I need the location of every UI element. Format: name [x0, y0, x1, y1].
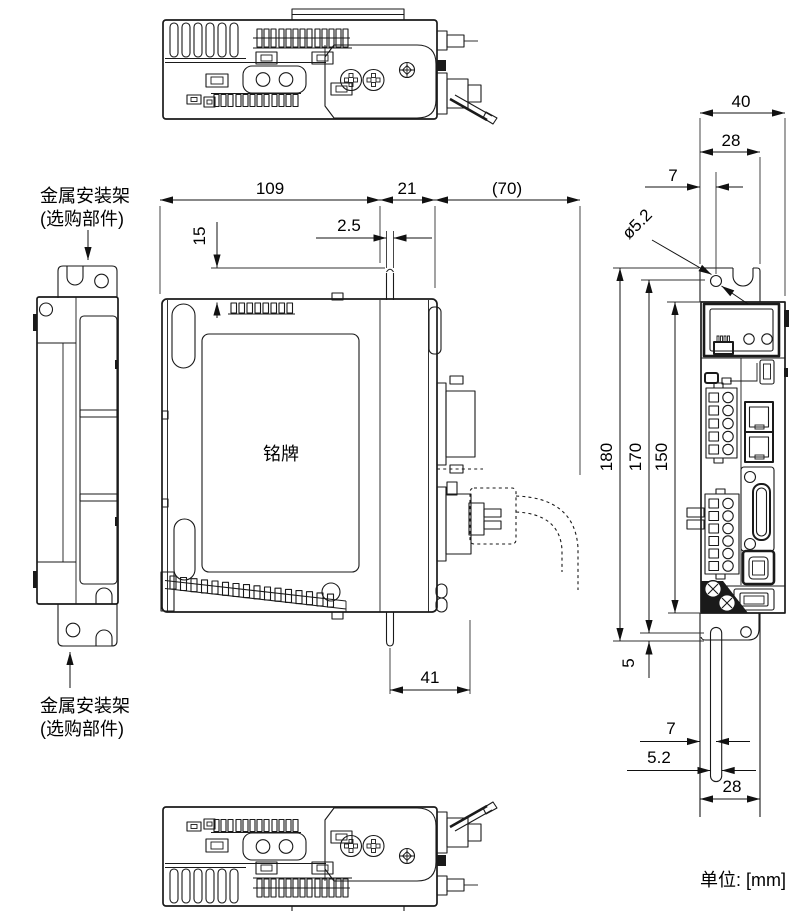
- heatsink-fins-icon: [165, 23, 246, 59]
- phillips-screw-icon: [719, 595, 736, 612]
- nameplate-label: 铭牌: [263, 444, 299, 464]
- network-jack: [745, 432, 773, 462]
- mounting-hole: [40, 303, 53, 316]
- indicator-hole: [762, 334, 772, 344]
- screw-icon: [341, 70, 362, 91]
- bottom-terminal-band: [165, 576, 346, 612]
- bracket-label-top-line1: 金属安装架: [40, 186, 130, 206]
- bracket-side-view: [33, 266, 118, 646]
- keyhole-slot: [174, 519, 195, 580]
- bracket-slot: [711, 627, 722, 781]
- mounting-hole: [95, 274, 109, 288]
- terminal-block-lower: [687, 489, 739, 579]
- dim-41: 41: [421, 668, 440, 687]
- bracket-hole: [711, 276, 722, 287]
- bracket-label-top-line2: (选购部件): [40, 209, 124, 229]
- button: [705, 373, 718, 383]
- front-top-panel: [704, 304, 779, 356]
- dim-5-2: 5.2: [647, 748, 671, 767]
- dim-7-bottom: 7: [666, 719, 675, 738]
- indicator-hole: [744, 334, 754, 344]
- io-connector-side: [437, 482, 501, 561]
- dim-21: 21: [398, 179, 417, 198]
- dim-40: 40: [732, 92, 751, 111]
- keyhole-slot: [172, 304, 195, 368]
- top-view: [163, 9, 497, 124]
- bracket-label-bottom-line2: (选购部件): [40, 719, 124, 739]
- engineering-drawing: 铭牌: [0, 0, 800, 911]
- units-note: 单位: [mm]: [700, 870, 786, 890]
- dim-170: 170: [626, 443, 645, 471]
- bracket-label-bottom-line1: 金属安装架: [40, 696, 130, 716]
- dsub-connector-side: [437, 376, 475, 473]
- screw-icon: [363, 70, 384, 91]
- side-view: 铭牌: [161, 269, 578, 646]
- bracket-edge-side: [332, 269, 394, 646]
- bracket-hole: [741, 627, 752, 638]
- terminal-block-upper: [706, 383, 737, 463]
- dim-150: 150: [652, 443, 671, 471]
- dim-109: 109: [256, 179, 284, 198]
- dim-28-top: 28: [722, 131, 741, 150]
- mating-plug-dashed: [470, 488, 578, 590]
- cable-clamp: [437, 31, 497, 124]
- network-jack: [745, 402, 773, 432]
- dim-28-bottom: 28: [723, 777, 742, 796]
- dsub-connector-front: [741, 467, 774, 551]
- dim-hole-dia: ø5.2: [618, 205, 655, 242]
- encoder-connector: [760, 360, 774, 384]
- phillips-screw-icon: [400, 63, 415, 78]
- dim-180: 180: [597, 443, 616, 471]
- dim-15: 15: [190, 227, 209, 246]
- mounting-hole: [66, 623, 80, 637]
- front-view: [687, 268, 789, 817]
- dimension-drawing-page: 铭牌: [0, 0, 800, 911]
- dim-2-5: 2.5: [337, 216, 361, 235]
- phillips-screw-icon: [705, 581, 722, 598]
- dim-7-top: 7: [668, 166, 677, 185]
- usb-connector: [743, 551, 774, 584]
- dimensions: 109 21 (70) 2.5 15 41 40 28 7 ø5.2: [160, 92, 785, 799]
- dim-70: (70): [492, 179, 522, 198]
- dim-5: 5: [619, 658, 638, 667]
- bottom-view: [163, 802, 497, 911]
- labels: 金属安装架 (选购部件) 金属安装架 (选购部件) 单位: [mm]: [40, 186, 786, 890]
- display-connector: [714, 342, 733, 354]
